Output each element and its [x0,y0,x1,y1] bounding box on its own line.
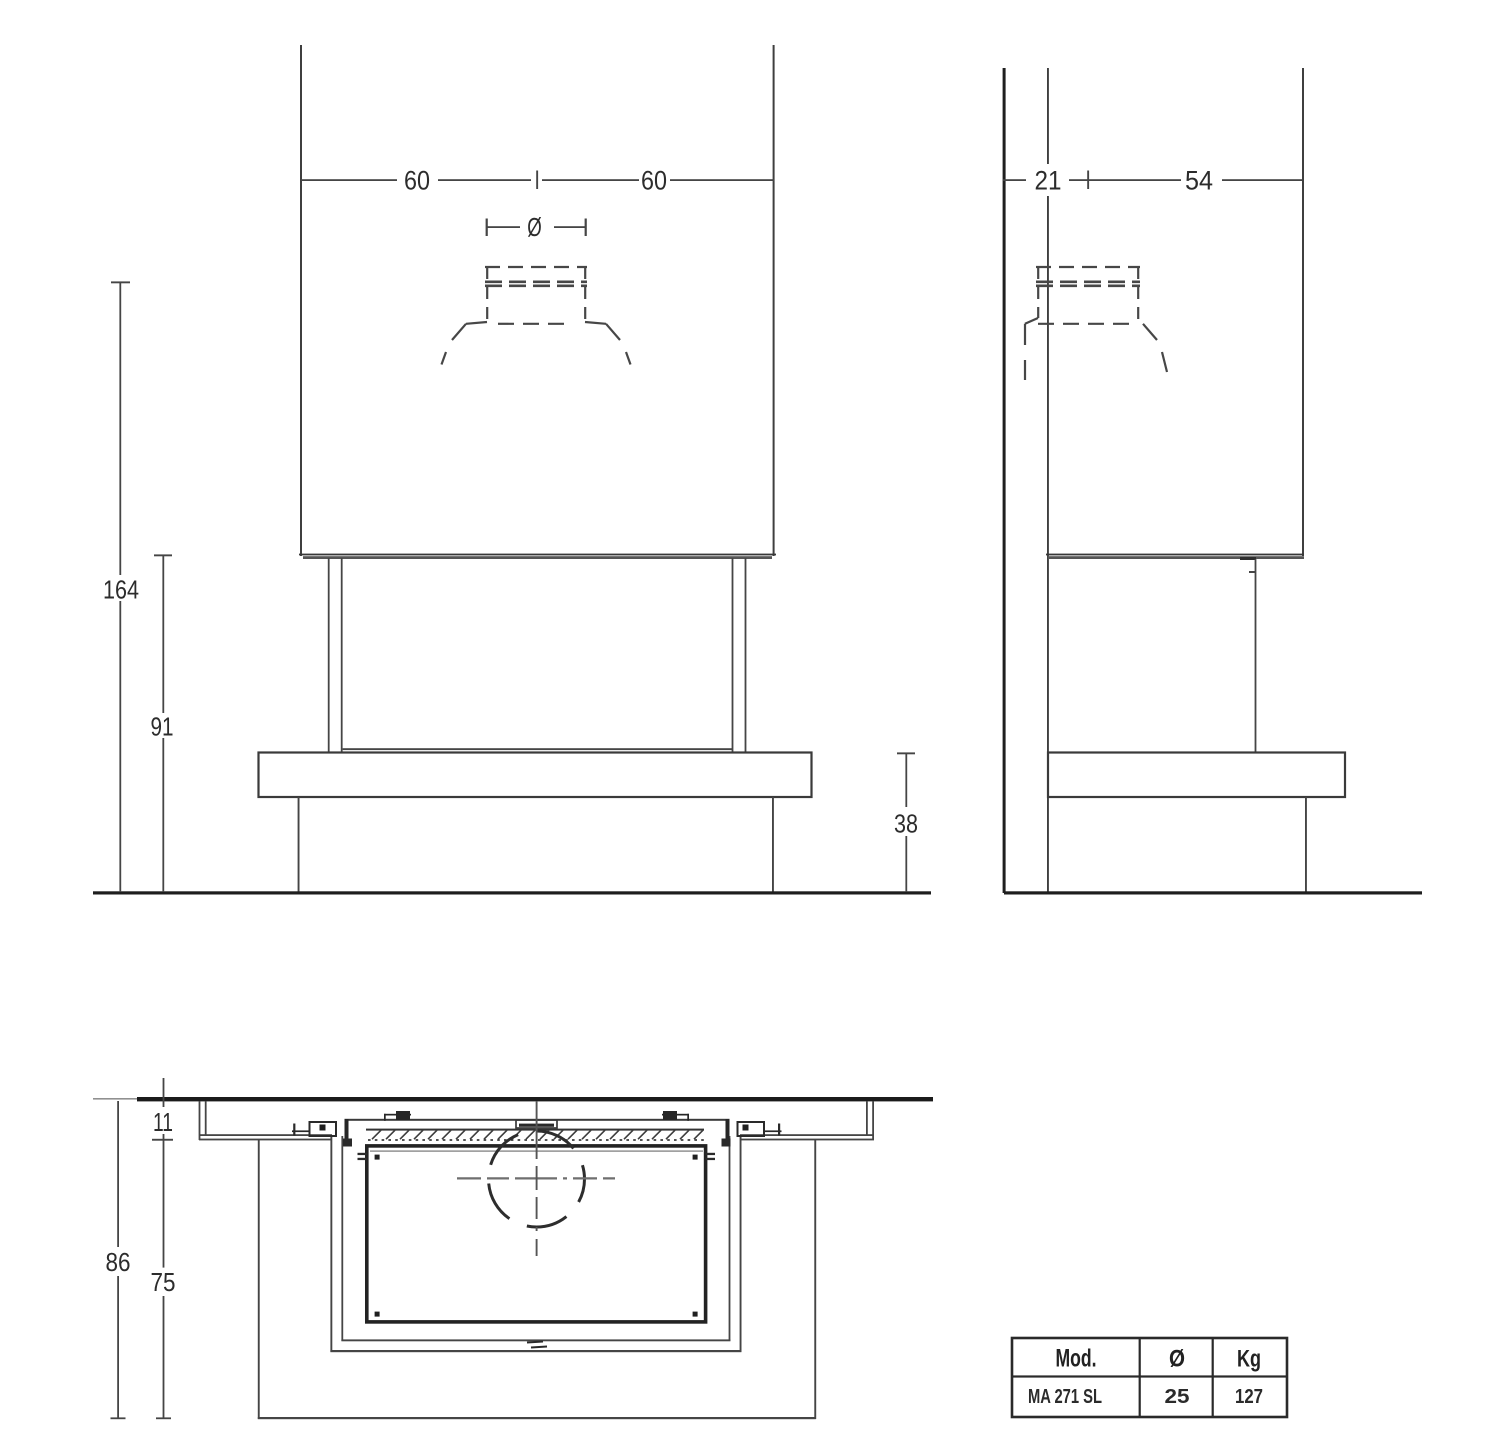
svg-text:38: 38 [894,809,918,839]
svg-text:25: 25 [1165,1386,1190,1408]
svg-text:Mod.: Mod. [1056,1345,1097,1373]
svg-text:75: 75 [151,1267,176,1297]
svg-text:MA 271 SL: MA 271 SL [1028,1386,1102,1408]
svg-text:54: 54 [1185,166,1213,196]
svg-text:60: 60 [641,166,667,196]
svg-text:164: 164 [103,575,139,605]
svg-text:127: 127 [1235,1386,1263,1408]
svg-text:11: 11 [153,1107,173,1137]
svg-text:60: 60 [404,166,430,196]
svg-text:21: 21 [1035,166,1062,196]
svg-text:Kg: Kg [1237,1346,1261,1373]
svg-text:91: 91 [151,712,174,742]
svg-text:86: 86 [106,1247,131,1277]
svg-text:Ø: Ø [1169,1346,1185,1373]
svg-text:Ø: Ø [527,212,542,242]
